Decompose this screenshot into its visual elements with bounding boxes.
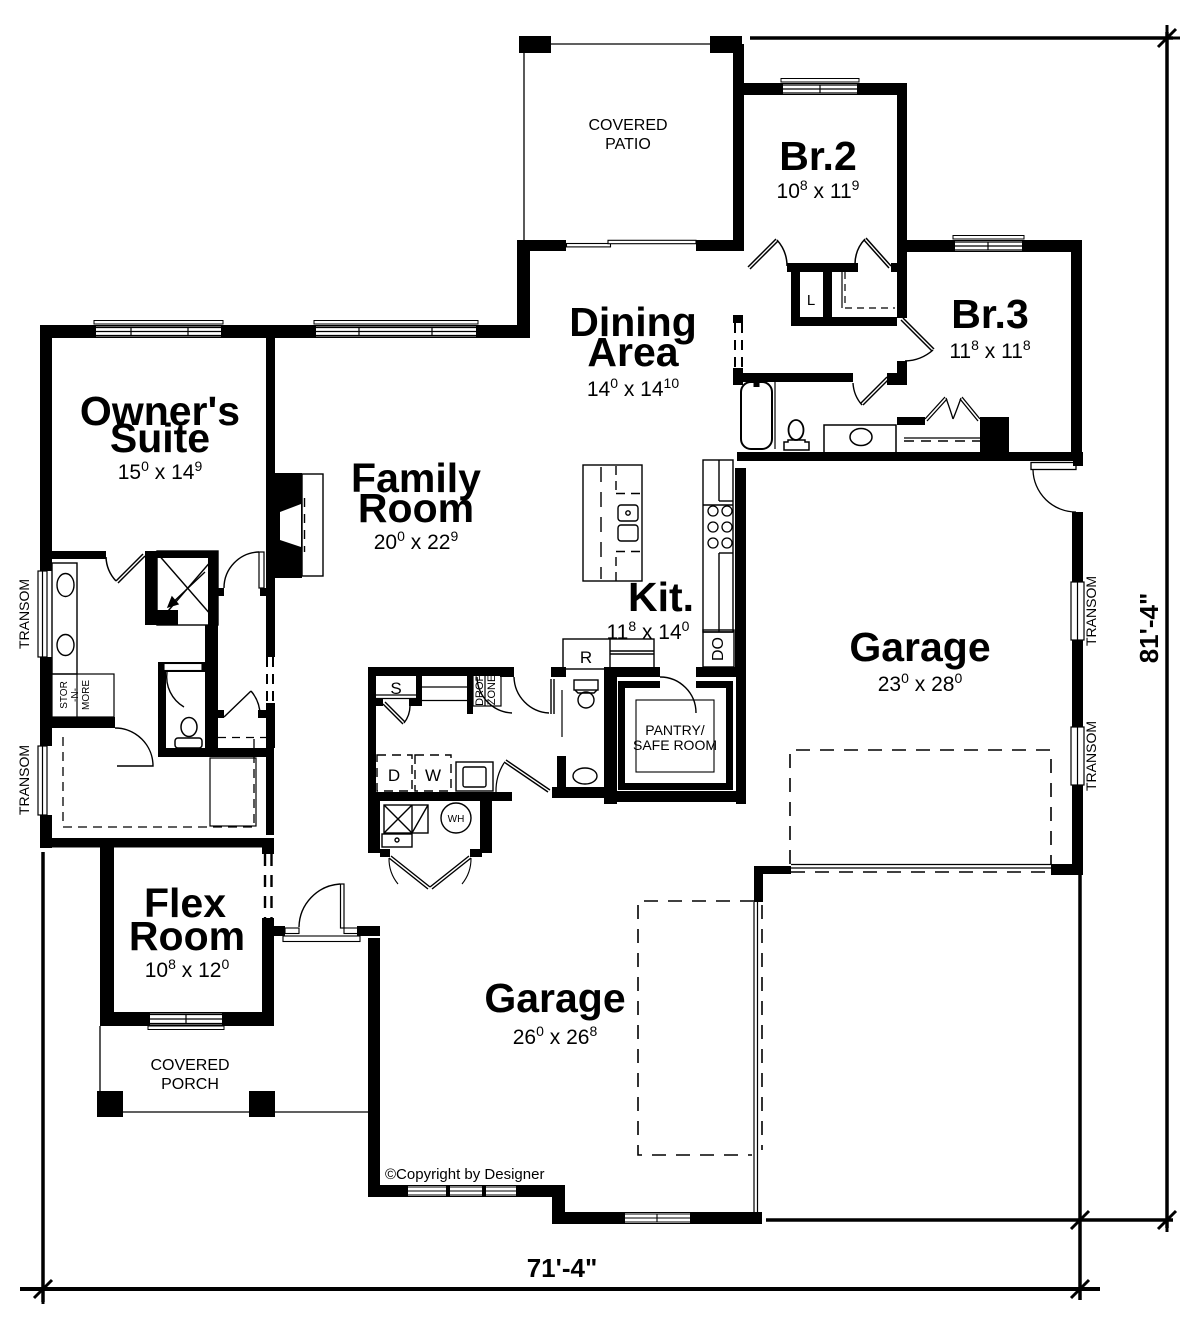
svg-text:PORCH: PORCH (161, 1076, 219, 1093)
svg-text:Br.2: Br.2 (779, 133, 857, 179)
svg-text:W: W (425, 766, 441, 785)
svg-text:Garage: Garage (849, 624, 990, 670)
svg-text:Br.3: Br.3 (951, 291, 1029, 337)
svg-text:108 x 119: 108 x 119 (777, 177, 860, 203)
svg-text:PANTRY/: PANTRY/ (645, 722, 704, 738)
svg-text:108 x 120: 108 x 120 (145, 956, 230, 982)
svg-text:200 x 229: 200 x 229 (374, 528, 459, 554)
svg-text:©Copyright by Designer: ©Copyright by Designer (385, 1166, 544, 1183)
svg-text:DROP: DROP (474, 674, 486, 706)
svg-text:Kit.: Kit. (628, 574, 694, 620)
svg-text:WH: WH (448, 814, 465, 825)
svg-text:118 x 118: 118 x 118 (949, 337, 1031, 363)
svg-text:COVERED: COVERED (150, 1057, 229, 1074)
svg-text:SAFE ROOM: SAFE ROOM (633, 737, 717, 753)
svg-text:230 x 280: 230 x 280 (878, 670, 963, 696)
svg-text:81'-4": 81'-4" (1134, 593, 1164, 664)
svg-text:TRANSOM: TRANSOM (16, 745, 32, 815)
svg-text:260 x 268: 260 x 268 (513, 1023, 598, 1049)
svg-text:R: R (580, 648, 592, 667)
svg-text:-N-: -N- (70, 688, 81, 702)
svg-text:Garage: Garage (484, 975, 625, 1021)
svg-text:71'-4": 71'-4" (527, 1253, 598, 1283)
svg-text:150 x 149: 150 x 149 (118, 458, 203, 484)
svg-text:DO: DO (710, 637, 727, 661)
svg-text:L: L (807, 292, 815, 309)
svg-text:COVERED: COVERED (588, 117, 667, 134)
svg-text:TRANSOM: TRANSOM (1083, 721, 1099, 791)
svg-text:D: D (388, 766, 400, 785)
svg-text:PATIO: PATIO (605, 136, 651, 153)
svg-text:TRANSOM: TRANSOM (16, 579, 32, 649)
svg-text:Suite: Suite (110, 415, 210, 461)
svg-text:MORE: MORE (81, 680, 92, 710)
svg-text:Area: Area (587, 329, 679, 375)
svg-text:Room: Room (358, 485, 474, 531)
svg-text:118 x 140: 118 x 140 (607, 618, 690, 644)
svg-text:Room: Room (129, 913, 245, 959)
svg-text:TRANSOM: TRANSOM (1083, 576, 1099, 646)
svg-text:STOR: STOR (59, 681, 70, 709)
svg-text:ZONE: ZONE (486, 675, 498, 706)
